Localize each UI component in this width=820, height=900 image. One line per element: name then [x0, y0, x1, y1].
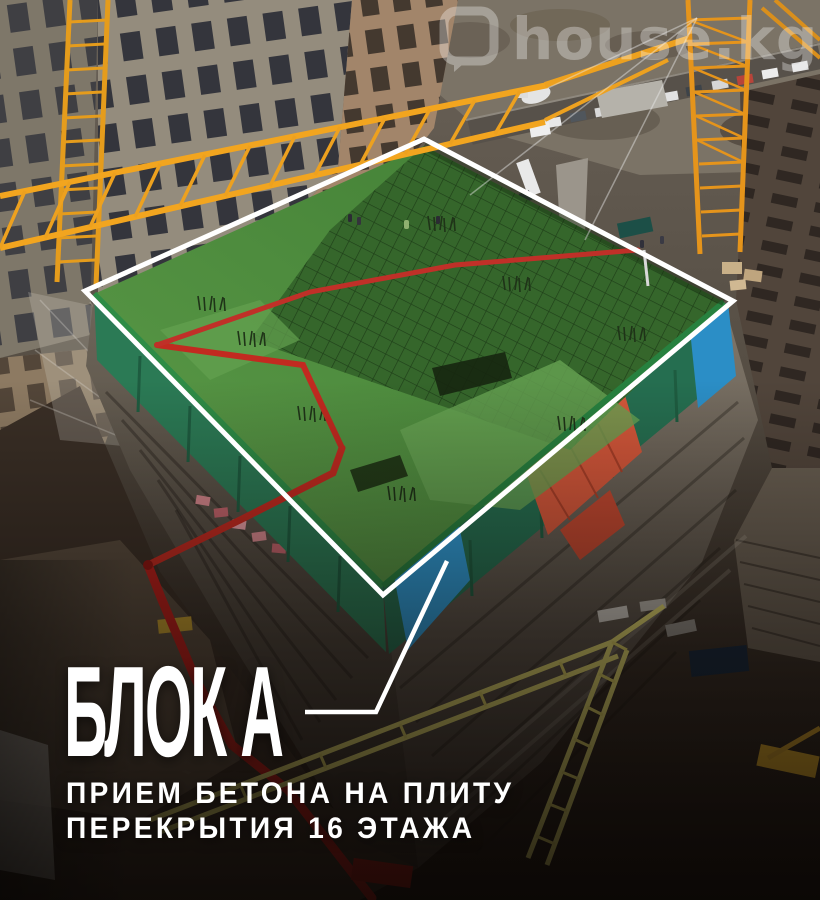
block-title: БЛОК А	[64, 648, 282, 777]
construction-photo-post: house.kg БЛОК А ПРИЕМ БЕТОНА НА ПЛИТУ ПЕ…	[0, 0, 820, 900]
subtitle-line-2: ПЕРЕКРЫТИЯ 16 ЭТАЖА	[66, 811, 514, 846]
caption-subtitle: ПРИЕМ БЕТОНА НА ПЛИТУ ПЕРЕКРЫТИЯ 16 ЭТАЖ…	[66, 776, 514, 846]
subtitle-line-1: ПРИЕМ БЕТОНА НА ПЛИТУ	[66, 776, 514, 811]
